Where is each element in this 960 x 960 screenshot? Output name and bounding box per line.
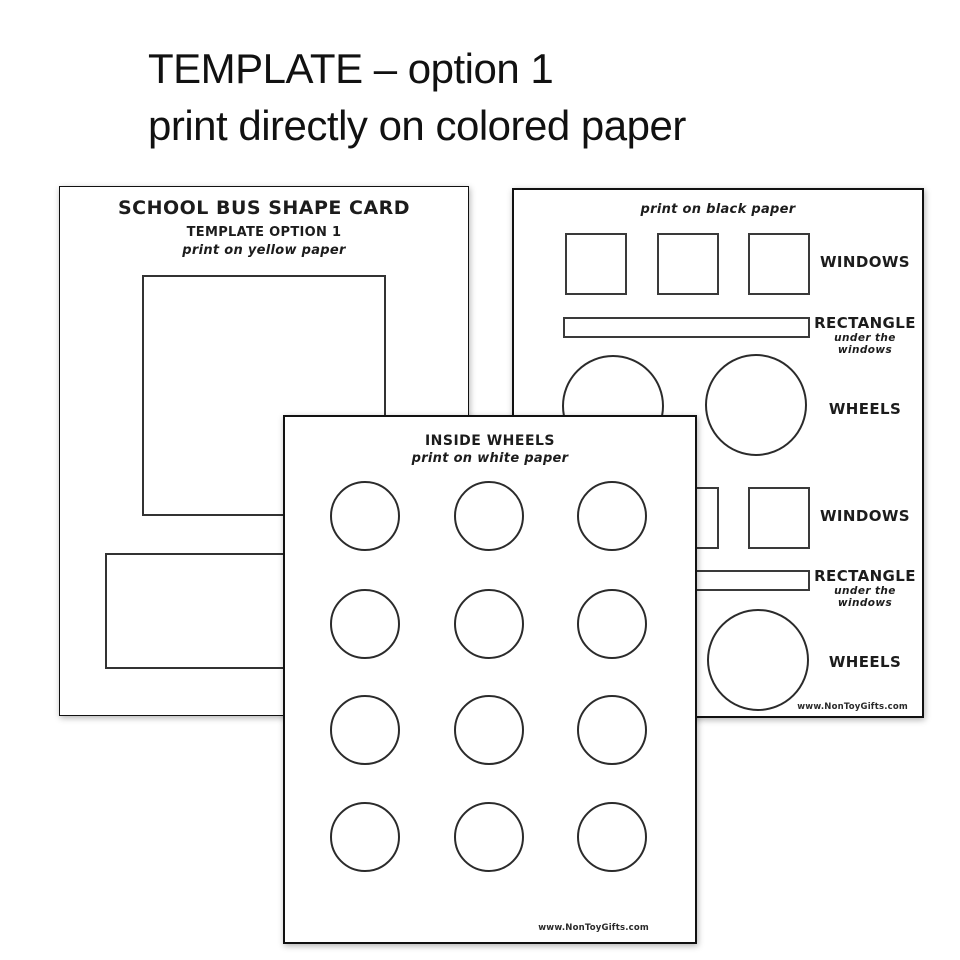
window-square xyxy=(748,233,810,295)
website-url: www.NonToyGifts.com xyxy=(538,923,649,933)
white-page-title: INSIDE WHEELS xyxy=(285,433,695,449)
inside-wheel-circle xyxy=(577,589,647,659)
white-paper-template-page: INSIDE WHEELS print on white paper www.N… xyxy=(283,415,697,944)
page-title-line2: print directly on colored paper xyxy=(148,97,686,154)
windows-label-top-text: WINDOWS xyxy=(806,254,924,271)
inside-wheel-circle xyxy=(454,802,524,872)
rectangle-label-bottom-text: RECTANGLE xyxy=(806,568,924,585)
rectangle-label-top-text: RECTANGLE xyxy=(806,315,924,332)
rectangle-label-bottom: RECTANGLE under the windows xyxy=(806,568,924,609)
windows-label-top: WINDOWS xyxy=(806,254,924,271)
wheels-label-bottom-text: WHEELS xyxy=(806,654,924,671)
inside-wheel-circle xyxy=(330,695,400,765)
white-page-print-note: print on white paper xyxy=(285,451,695,466)
inside-wheel-circle xyxy=(577,481,647,551)
wheel-circle xyxy=(707,609,809,711)
inside-wheel-circle xyxy=(454,589,524,659)
inside-wheel-circle xyxy=(330,802,400,872)
wheels-label-bottom: WHEELS xyxy=(806,654,924,671)
yellow-page-title: SCHOOL BUS SHAPE CARD xyxy=(60,197,468,219)
website-url: www.NonToyGifts.com xyxy=(797,702,908,712)
window-square xyxy=(657,233,719,295)
wheel-circle xyxy=(705,354,807,456)
rectangle-label-top-sub: under the windows xyxy=(806,332,924,356)
black-page-print-note: print on black paper xyxy=(514,202,922,217)
yellow-page-print-note: print on yellow paper xyxy=(60,243,468,258)
under-window-rectangle xyxy=(563,317,810,338)
page-title: TEMPLATE – option 1 print directly on co… xyxy=(148,40,686,154)
windows-label-bottom-text: WINDOWS xyxy=(806,508,924,525)
page-title-line1: TEMPLATE – option 1 xyxy=(148,40,686,97)
windows-label-bottom: WINDOWS xyxy=(806,508,924,525)
inside-wheel-circle xyxy=(330,589,400,659)
window-square xyxy=(565,233,627,295)
rectangle-label-bottom-sub: under the windows xyxy=(806,585,924,609)
inside-wheel-circle xyxy=(577,695,647,765)
inside-wheel-circle xyxy=(454,481,524,551)
inside-wheel-circle xyxy=(330,481,400,551)
rectangle-label-top: RECTANGLE under the windows xyxy=(806,315,924,356)
wheels-label-top: WHEELS xyxy=(806,401,924,418)
inside-wheel-circle xyxy=(577,802,647,872)
wheels-label-top-text: WHEELS xyxy=(806,401,924,418)
inside-wheel-circle xyxy=(454,695,524,765)
window-square xyxy=(748,487,810,549)
yellow-page-subtitle: TEMPLATE OPTION 1 xyxy=(60,225,468,240)
